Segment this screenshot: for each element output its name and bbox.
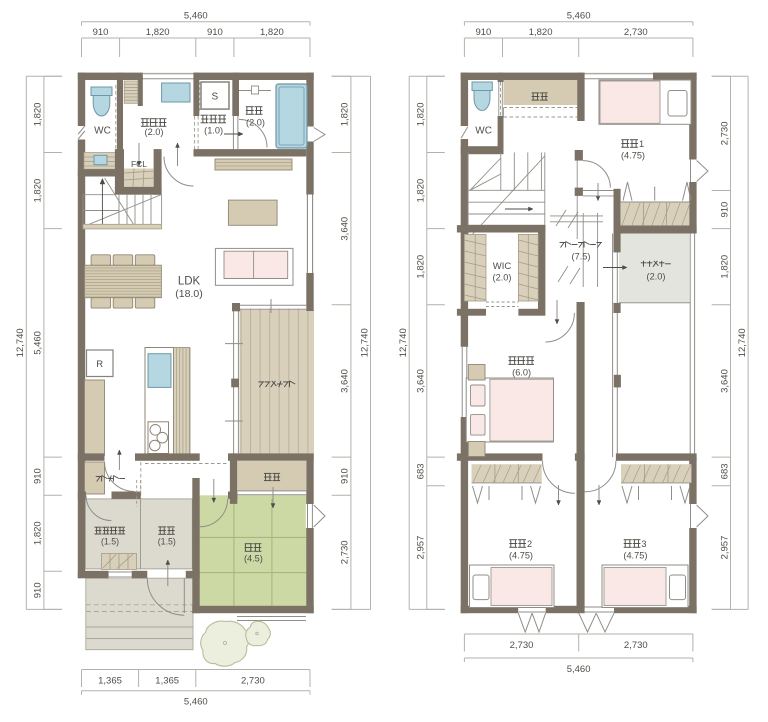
svg-text:3: 3 — [641, 539, 646, 549]
svg-text:1: 1 — [639, 139, 644, 149]
svg-text:910: 910 — [340, 468, 351, 484]
svg-text:3,640: 3,640 — [340, 217, 351, 241]
svg-text:(18.0): (18.0) — [175, 288, 202, 300]
svg-text:910: 910 — [93, 27, 109, 38]
svg-text:S: S — [211, 92, 218, 103]
svg-text:(6.0): (6.0) — [512, 368, 531, 378]
svg-text:1,820: 1,820 — [33, 521, 44, 545]
svg-text:(2.0): (2.0) — [493, 273, 512, 283]
svg-text:12,740: 12,740 — [398, 328, 409, 357]
svg-text:3,640: 3,640 — [340, 369, 351, 393]
svg-text:910: 910 — [207, 27, 223, 38]
svg-text:2,730: 2,730 — [510, 640, 534, 651]
svg-text:5,460: 5,460 — [184, 697, 208, 708]
svg-text:1,820: 1,820 — [146, 27, 170, 38]
svg-text:5,460: 5,460 — [33, 331, 44, 355]
svg-text:LDK: LDK — [178, 276, 201, 288]
svg-text:12,740: 12,740 — [15, 328, 26, 357]
svg-text:1,820: 1,820 — [416, 255, 427, 279]
svg-text:R: R — [96, 359, 103, 370]
svg-text:5,460: 5,460 — [184, 11, 208, 22]
svg-text:1,820: 1,820 — [33, 179, 44, 203]
svg-text:5,460: 5,460 — [567, 11, 591, 22]
svg-text:(4.75): (4.75) — [509, 551, 533, 561]
svg-text:1,820: 1,820 — [529, 27, 553, 38]
svg-text:1,365: 1,365 — [155, 676, 179, 687]
svg-text:(2.0): (2.0) — [246, 118, 265, 128]
svg-text:683: 683 — [416, 463, 427, 479]
svg-text:(4.75): (4.75) — [621, 151, 645, 161]
svg-text:1,820: 1,820 — [340, 103, 351, 127]
svg-text:(4.75): (4.75) — [623, 551, 647, 561]
svg-text:(2.0): (2.0) — [145, 127, 164, 137]
svg-text:1,365: 1,365 — [98, 676, 122, 687]
svg-text:(1.5): (1.5) — [101, 537, 119, 547]
svg-text:1,820: 1,820 — [416, 179, 427, 203]
svg-text:5,460: 5,460 — [567, 664, 591, 675]
svg-text:(4.5): (4.5) — [244, 554, 263, 564]
svg-text:12,740: 12,740 — [737, 328, 748, 357]
svg-text:3,640: 3,640 — [719, 369, 730, 393]
svg-text:1,820: 1,820 — [260, 27, 284, 38]
svg-text:1,820: 1,820 — [719, 255, 730, 279]
svg-text:2,730: 2,730 — [624, 27, 648, 38]
svg-text:1,820: 1,820 — [416, 103, 427, 127]
svg-text:910: 910 — [33, 582, 44, 598]
svg-text:2,730: 2,730 — [719, 122, 730, 146]
svg-text:(1.0): (1.0) — [204, 126, 223, 136]
svg-text:WIC: WIC — [493, 261, 512, 272]
svg-text:683: 683 — [719, 463, 730, 479]
svg-text:910: 910 — [475, 27, 491, 38]
svg-text:2,730: 2,730 — [241, 676, 265, 687]
svg-text:FCL: FCL — [131, 159, 147, 169]
svg-text:(2.0): (2.0) — [647, 272, 666, 282]
svg-text:910: 910 — [33, 468, 44, 484]
svg-text:(1.5): (1.5) — [158, 537, 176, 547]
svg-text:1,820: 1,820 — [33, 103, 44, 127]
svg-text:3,640: 3,640 — [416, 369, 427, 393]
svg-text:WC: WC — [94, 126, 111, 137]
svg-text:12,740: 12,740 — [359, 328, 370, 357]
svg-text:910: 910 — [719, 202, 730, 218]
svg-text:(7.5): (7.5) — [572, 252, 591, 262]
svg-text:2,730: 2,730 — [340, 540, 351, 564]
svg-text:2,957: 2,957 — [719, 536, 730, 560]
svg-text:2,730: 2,730 — [624, 640, 648, 651]
svg-text:2,957: 2,957 — [416, 536, 427, 560]
svg-text:2: 2 — [527, 539, 532, 549]
svg-text:WC: WC — [475, 126, 492, 137]
